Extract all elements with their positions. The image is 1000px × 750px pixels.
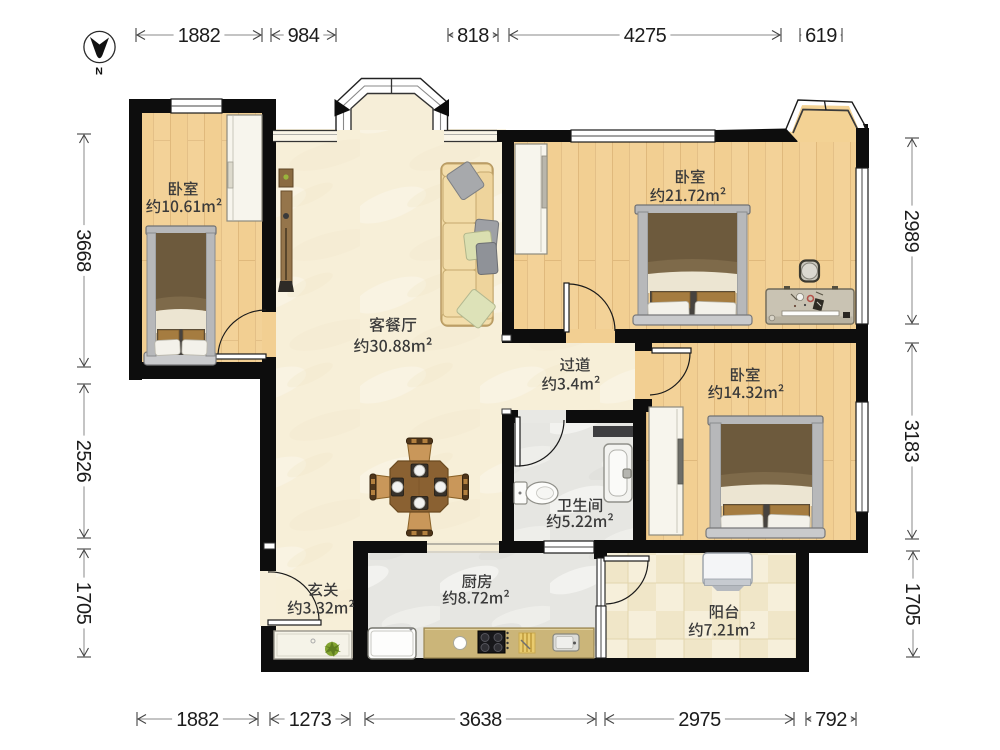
svg-text:818: 818: [457, 25, 489, 47]
svg-text:984: 984: [288, 25, 320, 47]
svg-text:2526: 2526: [72, 440, 94, 483]
svg-text:3668: 3668: [72, 229, 94, 272]
svg-text:2975: 2975: [678, 709, 721, 731]
svg-text:3183: 3183: [900, 420, 922, 463]
svg-text:1273: 1273: [289, 709, 332, 731]
svg-text:1882: 1882: [178, 25, 221, 47]
svg-text:619: 619: [805, 25, 837, 47]
svg-text:1882: 1882: [176, 709, 219, 731]
svg-text:1705: 1705: [901, 583, 923, 626]
svg-text:N: N: [95, 66, 103, 78]
svg-text:1705: 1705: [72, 582, 94, 625]
svg-text:4275: 4275: [624, 25, 667, 47]
svg-text:3638: 3638: [459, 709, 502, 731]
svg-text:792: 792: [815, 709, 847, 731]
svg-text:2989: 2989: [900, 210, 922, 253]
